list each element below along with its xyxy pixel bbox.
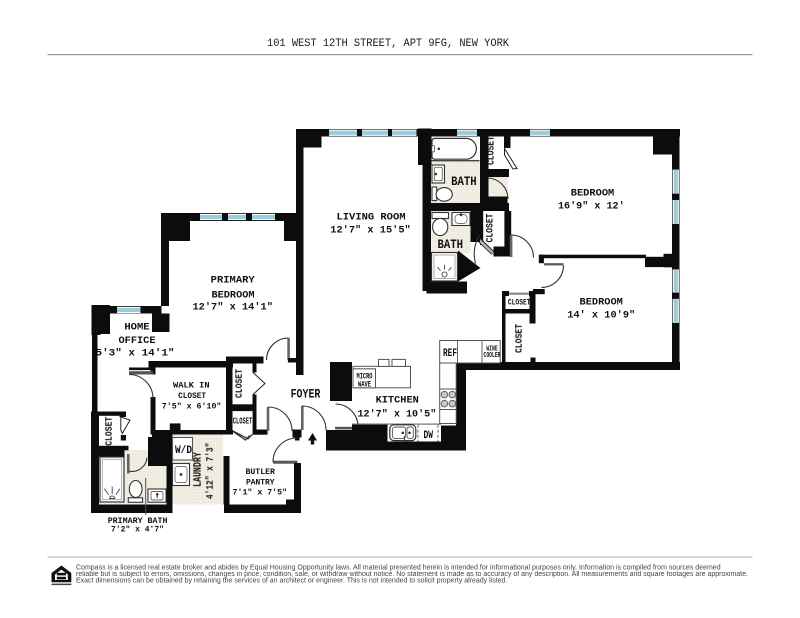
svg-text:CLOSET: CLOSET — [486, 136, 498, 165]
svg-text:WAVE: WAVE — [358, 380, 371, 390]
svg-text:BATH: BATH — [438, 238, 464, 252]
svg-text:OFFICE: OFFICE — [119, 335, 156, 347]
svg-text:7'1" x 7'5": 7'1" x 7'5" — [233, 488, 288, 498]
svg-text:COOLER: COOLER — [484, 352, 502, 360]
svg-text:DW: DW — [424, 430, 434, 442]
svg-text:Exact dimensions can be obtain: Exact dimensions can be obtained by reta… — [76, 578, 507, 585]
svg-text:101 WEST 12TH STREET, APT 9FG,: 101 WEST 12TH STREET, APT 9FG, NEW YORK — [267, 38, 509, 50]
svg-text:W/D: W/D — [175, 445, 192, 457]
svg-text:BATH: BATH — [451, 175, 477, 189]
svg-text:CLOSET: CLOSET — [234, 369, 246, 398]
svg-text:REF: REF — [443, 348, 457, 360]
svg-text:PRIMARY: PRIMARY — [211, 275, 256, 287]
svg-text:CLOSET: CLOSET — [104, 417, 116, 446]
svg-text:14' x 10'9": 14' x 10'9" — [567, 310, 635, 322]
svg-text:PANTRY: PANTRY — [246, 477, 275, 487]
svg-text:5'3" x 14'1": 5'3" x 14'1" — [96, 348, 175, 360]
svg-text:LAUNDRY: LAUNDRY — [193, 452, 205, 487]
svg-text:BEDROOM: BEDROOM — [212, 290, 255, 302]
svg-text:7'5" x 6'10": 7'5" x 6'10" — [162, 402, 222, 412]
svg-text:FOYER: FOYER — [291, 388, 321, 402]
svg-text:WALK IN: WALK IN — [173, 381, 210, 391]
svg-text:7'2" x 4'7": 7'2" x 4'7" — [111, 525, 164, 535]
svg-text:CLOSET: CLOSET — [485, 214, 497, 243]
svg-text:HOME: HOME — [124, 321, 149, 333]
svg-text:4'12" x 7'3": 4'12" x 7'3" — [205, 443, 217, 499]
svg-text:BUTLER: BUTLER — [245, 467, 275, 477]
svg-text:16'9" x 12': 16'9" x 12' — [558, 201, 625, 213]
svg-text:BEDROOM: BEDROOM — [580, 297, 623, 309]
svg-text:CLOSET: CLOSET — [178, 391, 206, 401]
svg-text:12'7" x 10'5": 12'7" x 10'5" — [358, 409, 437, 421]
svg-text:CLOSET: CLOSET — [233, 417, 253, 427]
svg-text:CLOSET: CLOSET — [508, 298, 531, 307]
svg-text:KITCHEN: KITCHEN — [376, 395, 419, 407]
svg-text:CLOSET: CLOSET — [514, 324, 526, 353]
svg-text:12'7" x 15'5": 12'7" x 15'5" — [330, 225, 411, 237]
svg-text:LIVING ROOM: LIVING ROOM — [337, 212, 406, 224]
svg-text:BEDROOM: BEDROOM — [571, 188, 615, 200]
svg-text:12'7" x 14'1": 12'7" x 14'1" — [192, 302, 273, 314]
